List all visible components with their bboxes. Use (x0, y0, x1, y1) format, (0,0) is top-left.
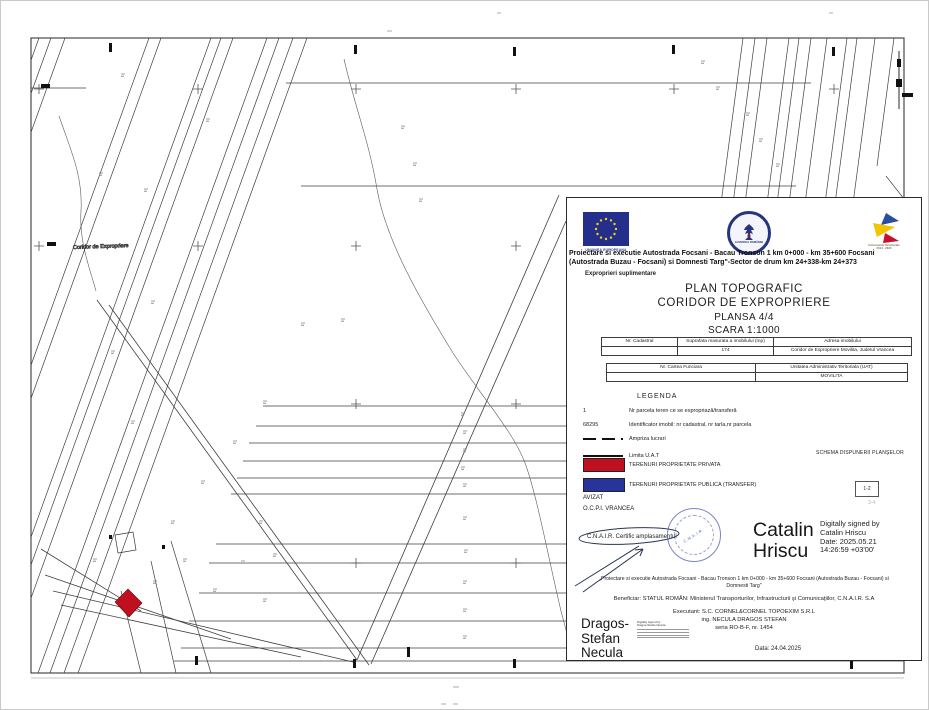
legend-item-private-land: TERENURI PROPRIETATE PRIVATA (583, 459, 720, 471)
solid-line-icon (583, 455, 623, 458)
corridor-lines (41, 195, 566, 665)
illegible-text-line (637, 632, 689, 633)
sig-detail-line: 14:26:59 +03'00' (820, 546, 880, 555)
project-subtitle: Exproprieri suplimentare (585, 271, 656, 277)
parcel-lines-right (720, 38, 904, 211)
plan-heading: PLAN TOPOGRAFIC (567, 283, 921, 295)
project-title-line2: (Autostrada Buzau - Focsani) si Domnesti… (569, 259, 921, 267)
legend-item-ampriza: Ampriza lucrari (583, 433, 666, 445)
project-title-line1: Proiectare si executie Autostrada Focsan… (569, 250, 921, 258)
legend-label: TERENURI PROPRIETATE PRIVATA (629, 462, 720, 468)
cell-uat: MOVILITA (756, 373, 908, 382)
legend-item-parcel-number: 1 Nr parcela teren ce se expropriază/tra… (583, 405, 737, 417)
cadastral-table: Nr. Cadastral Suprafata masurata a imobi… (601, 337, 912, 356)
red-parcel (115, 532, 142, 617)
parcel-lines-left (1, 38, 307, 673)
terrain-curves (59, 59, 573, 656)
signature-necula-details: Digitally signed by Dragos-Stefan Necula (637, 621, 699, 640)
executant-line: Executant: S.C. CORNEL&CORNEL TOPOEXIM S… (567, 609, 921, 615)
avizat-label: AVIZAT (583, 495, 603, 501)
date-line: Data: 24.04.2025 (755, 646, 801, 652)
legend-label: Identificator imobil: nr cadastral, nr t… (629, 422, 751, 428)
ocpi-label: O.C.P.I. VRANCEA (583, 506, 634, 512)
schema-title: SCHEMA DISPUNERII PLANŞELOR (803, 450, 917, 456)
illegible-text-line (637, 629, 689, 630)
schema-sheet-box: 1-2 (855, 481, 879, 497)
col-uat: Unitatea Administrativ Teritoriala (UAT) (756, 364, 908, 373)
cell-cartea-funciara (607, 373, 756, 382)
cell-suprafata: 174 (678, 347, 774, 356)
legend-item-identifier: 68295 Identificator imobil: nr cadastral… (583, 419, 751, 431)
dashed-line-icon (583, 438, 623, 441)
gov-emblem-caption: GUVERNUL ROMÂNIEI (735, 241, 763, 244)
legend-label: Nr parcela teren ce se expropriază/trans… (629, 408, 737, 414)
plan-sheet: Coridor de Expropriere UNIUNEA EUROPEANA (0, 0, 929, 710)
land-book-table: Nr. Cartea Funciara Unitatea Administrat… (606, 363, 908, 382)
handwritten-arrow (567, 526, 757, 601)
col-adresa: Adresa imobilului (774, 338, 912, 347)
cadastral-table-data-row: 174 Coridor de Expropriere Movilita, Jud… (602, 347, 912, 356)
eu-flag-icon (583, 212, 629, 246)
land-book-header-row: Nr. Cartea Funciara Unitatea Administrat… (607, 364, 908, 373)
legend-label: Ampriza lucrari (629, 436, 666, 442)
illegible-text-line (637, 637, 689, 638)
instrumente-structurale-icon (864, 212, 904, 246)
signature-dragos-necula: Dragos-Stefan Necula (581, 617, 635, 661)
scale-heading: SCARA 1:1000 (567, 325, 921, 336)
corridor-heading: CORIDOR DE EXPROPRIERE (567, 297, 921, 309)
map-label-coridor: Coridor de Expropriere (73, 243, 129, 251)
col-suprafata: Suprafata masurata a imobilului (mp) (678, 338, 774, 347)
blue-swatch-icon (583, 478, 625, 492)
legend-symbol-identifier: 68295 (583, 422, 598, 428)
illegible-text-line (637, 635, 689, 636)
signature-catalin-details: Digitally signed by Catalin Hriscu Date:… (820, 520, 880, 555)
sig-detail-line: Dragos-Stefan Necula (637, 624, 699, 627)
title-block-panel: UNIUNEA EUROPEANA GUVERNUL ROMÂNIEI Inst… (566, 197, 922, 661)
schema-sheet-faint: 3-4 (868, 500, 875, 506)
col-nr-cadastral: Nr. Cadastral (602, 338, 678, 347)
land-book-data-row: MOVILITA (607, 373, 908, 382)
sheet-number-heading: PLANSA 4/4 (567, 312, 921, 323)
cadastral-table-header-row: Nr. Cadastral Suprafata masurata a imobi… (602, 338, 912, 347)
legend-symbol-parcel-number: 1 (583, 408, 586, 414)
romanian-government-emblem-icon: GUVERNUL ROMÂNIEI (727, 211, 771, 255)
col-cartea-funciara: Nr. Cartea Funciara (607, 364, 756, 373)
red-swatch-icon (583, 458, 625, 472)
legend-title: LEGENDA (637, 393, 677, 400)
eagle-icon (741, 223, 757, 241)
legend-item-public-land: TERENURI PROPRIETATE PUBLICA (TRANSFER) (583, 479, 756, 491)
cell-adresa: Coridor de Expropriere Movilita, Judetul… (774, 347, 912, 356)
cell-nr-cadastral (602, 347, 678, 356)
legend-label: TERENURI PROPRIETATE PUBLICA (TRANSFER) (629, 482, 756, 488)
